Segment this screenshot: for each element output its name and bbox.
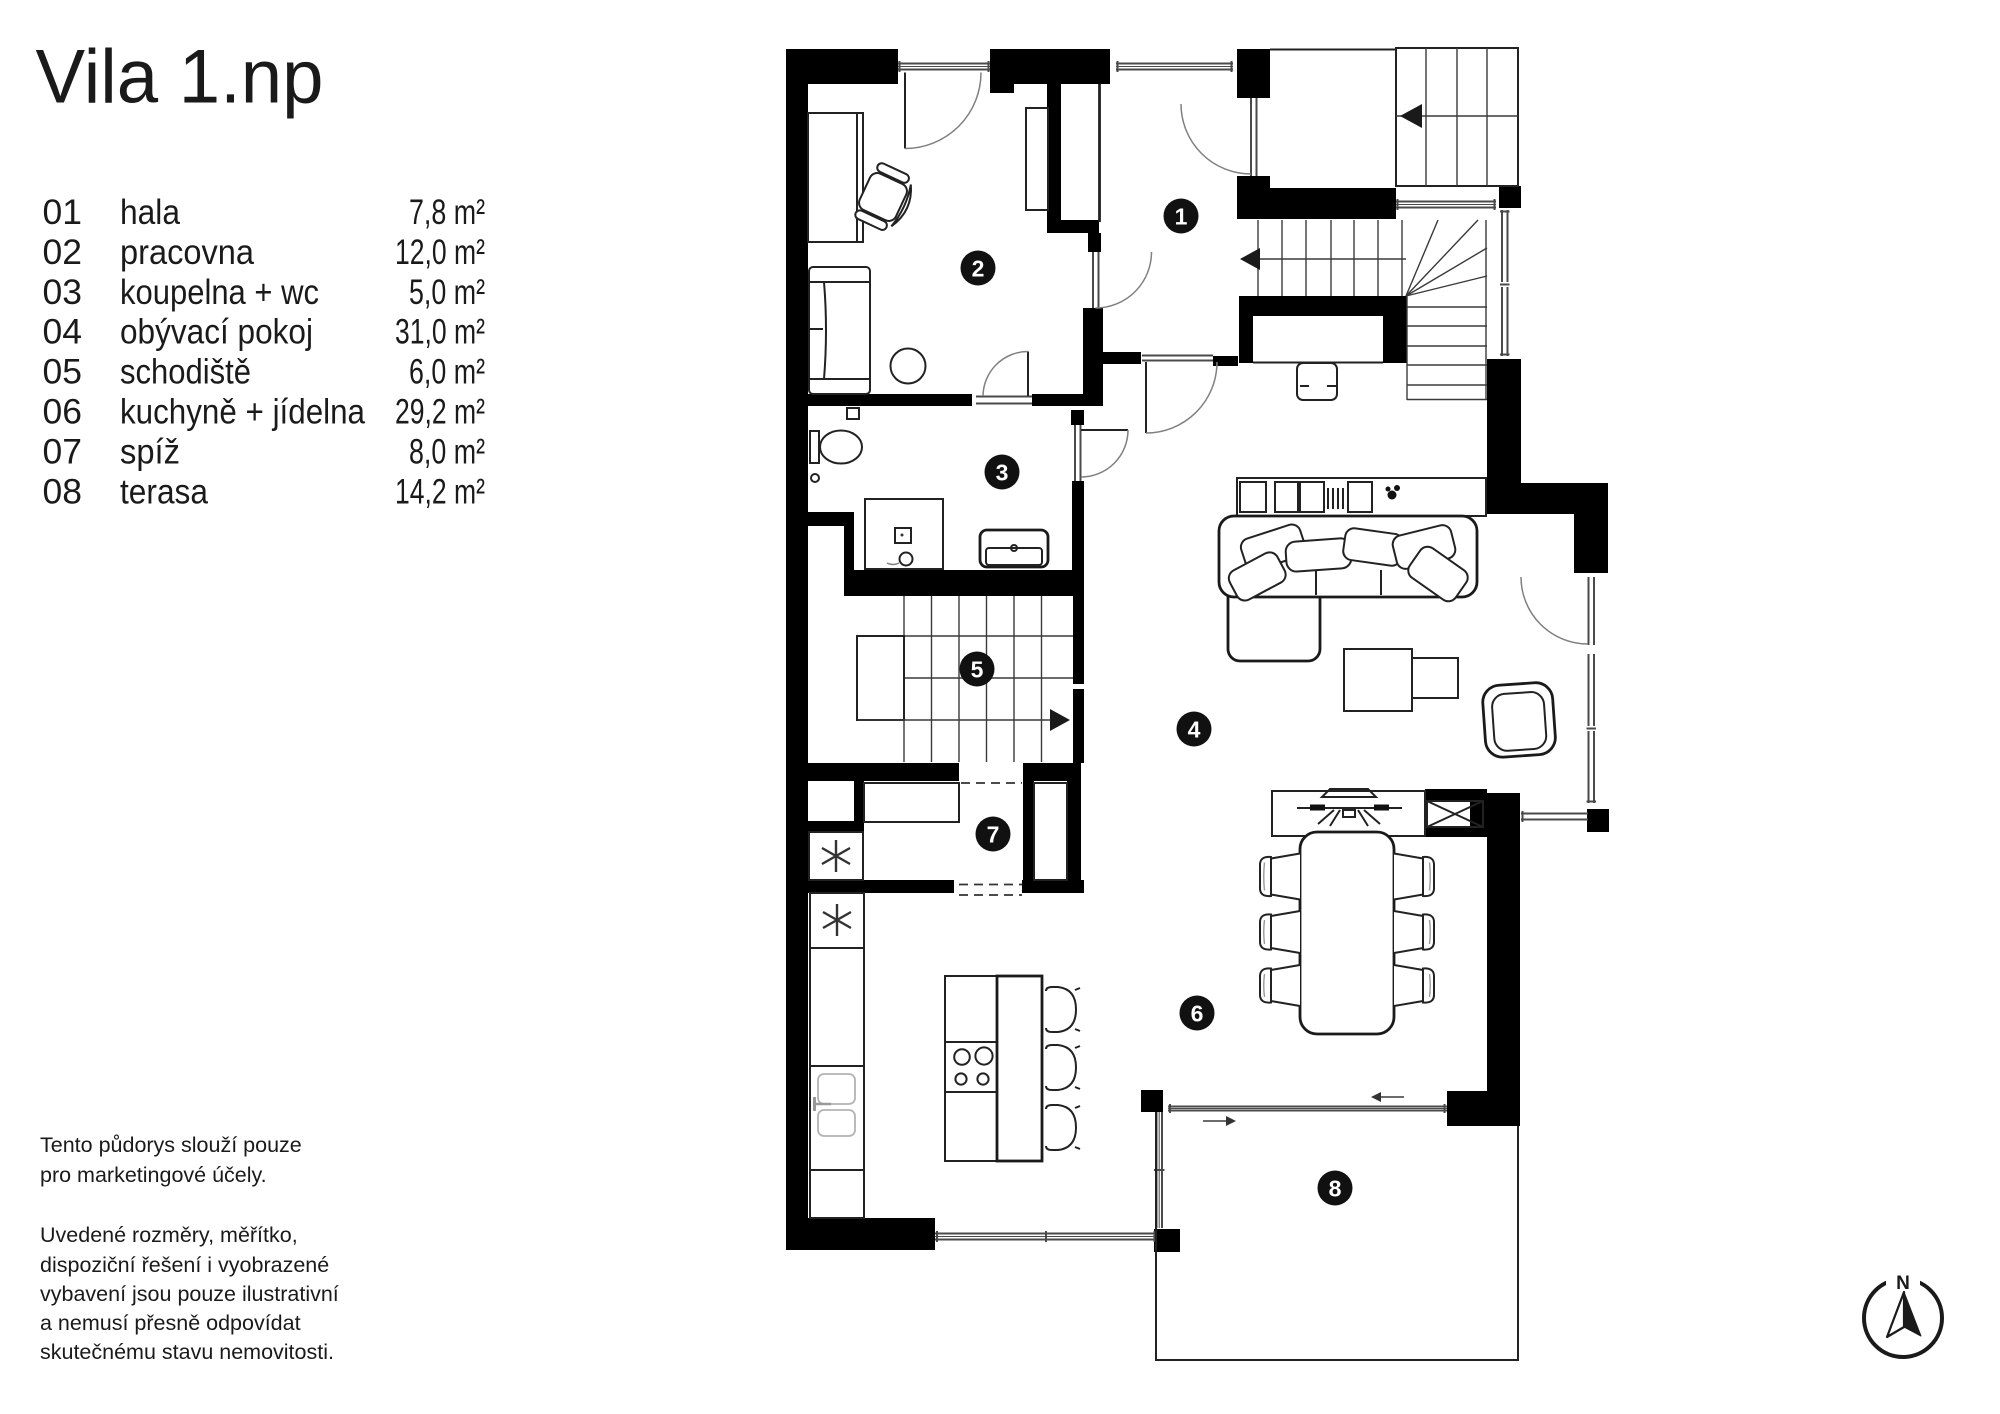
svg-text:Uvedené rozměry, měřítko,: Uvedené rozměry, měřítko, — [40, 1223, 298, 1247]
svg-text:07: 07 — [43, 431, 83, 471]
svg-text:14,2 m²: 14,2 m² — [395, 471, 485, 511]
svg-text:schodiště: schodiště — [120, 352, 251, 392]
svg-text:1: 1 — [1175, 204, 1188, 230]
svg-text:obývací pokoj: obývací pokoj — [120, 312, 313, 352]
svg-text:5,0 m²: 5,0 m² — [409, 272, 485, 312]
svg-text:Tento půdorys slouží pouze: Tento půdorys slouží pouze — [40, 1133, 302, 1157]
svg-text:hala: hala — [120, 192, 180, 232]
svg-text:skutečnému stavu nemovitosti.: skutečnému stavu nemovitosti. — [40, 1340, 334, 1364]
svg-text:kuchyně + jídelna: kuchyně + jídelna — [120, 392, 365, 432]
svg-text:2: 2 — [972, 256, 985, 282]
svg-text:koupelna + wc: koupelna + wc — [120, 272, 319, 312]
svg-text:6: 6 — [1191, 1001, 1204, 1027]
svg-text:5: 5 — [971, 657, 984, 683]
svg-text:pracovna: pracovna — [120, 232, 254, 272]
svg-text:04: 04 — [43, 312, 83, 352]
svg-text:8: 8 — [1329, 1176, 1342, 1202]
svg-text:6,0 m²: 6,0 m² — [409, 352, 485, 392]
svg-text:29,2 m²: 29,2 m² — [395, 392, 485, 432]
svg-text:03: 03 — [43, 272, 83, 312]
svg-text:31,0 m²: 31,0 m² — [395, 312, 485, 352]
svg-text:terasa: terasa — [120, 471, 208, 511]
svg-text:vybavení jsou pouze ilustrativ: vybavení jsou pouze ilustrativní — [40, 1282, 339, 1306]
svg-text:spíž: spíž — [120, 431, 180, 471]
svg-text:06: 06 — [43, 392, 83, 432]
svg-text:Vila 1.np: Vila 1.np — [36, 35, 324, 120]
svg-text:02: 02 — [43, 232, 83, 272]
svg-text:a nemusí přesně odpovídat: a nemusí přesně odpovídat — [40, 1311, 301, 1335]
svg-text:7: 7 — [987, 822, 1000, 848]
svg-text:01: 01 — [43, 192, 83, 232]
svg-text:pro marketingové účely.: pro marketingové účely. — [40, 1163, 267, 1187]
svg-text:7,8 m²: 7,8 m² — [409, 192, 485, 232]
svg-text:12,0 m²: 12,0 m² — [395, 232, 485, 272]
svg-text:dispoziční řešení i vyobrazené: dispoziční řešení i vyobrazené — [40, 1253, 329, 1277]
svg-text:8,0 m²: 8,0 m² — [409, 431, 485, 471]
svg-text:08: 08 — [43, 471, 83, 511]
svg-text:N: N — [1896, 1273, 1910, 1294]
svg-text:05: 05 — [43, 352, 83, 392]
svg-text:3: 3 — [996, 460, 1009, 486]
svg-text:4: 4 — [1188, 717, 1201, 743]
